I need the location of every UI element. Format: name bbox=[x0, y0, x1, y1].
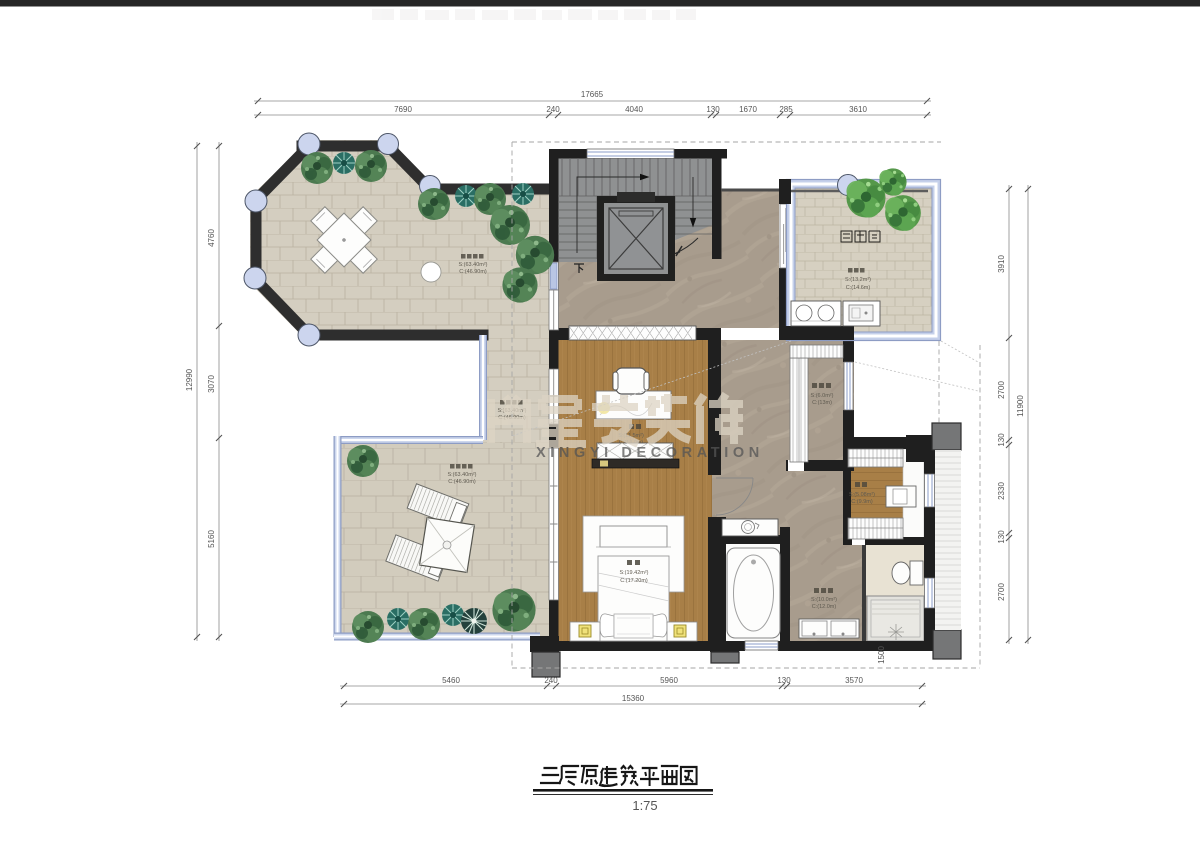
svg-text:3610: 3610 bbox=[849, 105, 867, 114]
svg-text:285: 285 bbox=[779, 105, 793, 114]
svg-text:S:(19.42m²): S:(19.42m²) bbox=[619, 570, 648, 576]
svg-text:2330: 2330 bbox=[997, 482, 1006, 500]
svg-text:240: 240 bbox=[544, 676, 558, 685]
svg-text:3070: 3070 bbox=[207, 375, 216, 393]
svg-text:C:(17.20m): C:(17.20m) bbox=[620, 578, 648, 584]
svg-text:3570: 3570 bbox=[845, 676, 863, 685]
svg-text:5160: 5160 bbox=[207, 530, 216, 548]
svg-text:5460: 5460 bbox=[442, 676, 460, 685]
svg-text:2700: 2700 bbox=[997, 381, 1006, 399]
svg-text:5960: 5960 bbox=[660, 676, 678, 685]
svg-text:C:(46.90m): C:(46.90m) bbox=[459, 269, 487, 275]
svg-text:S:(6.0m²): S:(6.0m²) bbox=[811, 393, 834, 399]
svg-text:130: 130 bbox=[777, 676, 791, 685]
svg-text:130: 130 bbox=[997, 433, 1006, 447]
svg-text:S:(13.2m²): S:(13.2m²) bbox=[845, 277, 871, 283]
svg-text:S:(63.40m²): S:(63.40m²) bbox=[458, 262, 487, 268]
svg-text:2700: 2700 bbox=[997, 583, 1006, 601]
svg-text:C:(46.90m): C:(46.90m) bbox=[448, 479, 476, 485]
svg-text:12990: 12990 bbox=[185, 368, 194, 391]
svg-text:130: 130 bbox=[997, 530, 1006, 544]
svg-text:1670: 1670 bbox=[739, 105, 757, 114]
svg-text:1500: 1500 bbox=[877, 646, 886, 664]
svg-text:S:(10.0m²): S:(10.0m²) bbox=[811, 597, 837, 603]
svg-text:15360: 15360 bbox=[622, 694, 645, 703]
svg-text:4040: 4040 bbox=[625, 105, 643, 114]
svg-text:3910: 3910 bbox=[997, 255, 1006, 273]
svg-text:130: 130 bbox=[706, 105, 720, 114]
svg-text:S:(5.08m²): S:(5.08m²) bbox=[849, 492, 875, 498]
svg-text:7690: 7690 bbox=[394, 105, 412, 114]
svg-text:11900: 11900 bbox=[1016, 395, 1025, 417]
svg-text:1:75: 1:75 bbox=[632, 798, 657, 813]
svg-text:4760: 4760 bbox=[207, 229, 216, 247]
svg-text:S:(63.40m²): S:(63.40m²) bbox=[447, 472, 476, 478]
svg-text:XINGYI DECORATION: XINGYI DECORATION bbox=[536, 445, 764, 461]
svg-text:C:(14.6m): C:(14.6m) bbox=[846, 285, 871, 291]
svg-text:17665: 17665 bbox=[581, 90, 604, 99]
svg-text:C:(9.9m): C:(9.9m) bbox=[851, 499, 873, 505]
svg-text:240: 240 bbox=[546, 105, 560, 114]
svg-text:C:(13m): C:(13m) bbox=[812, 400, 832, 406]
svg-text:C:(12.0m): C:(12.0m) bbox=[812, 604, 837, 610]
